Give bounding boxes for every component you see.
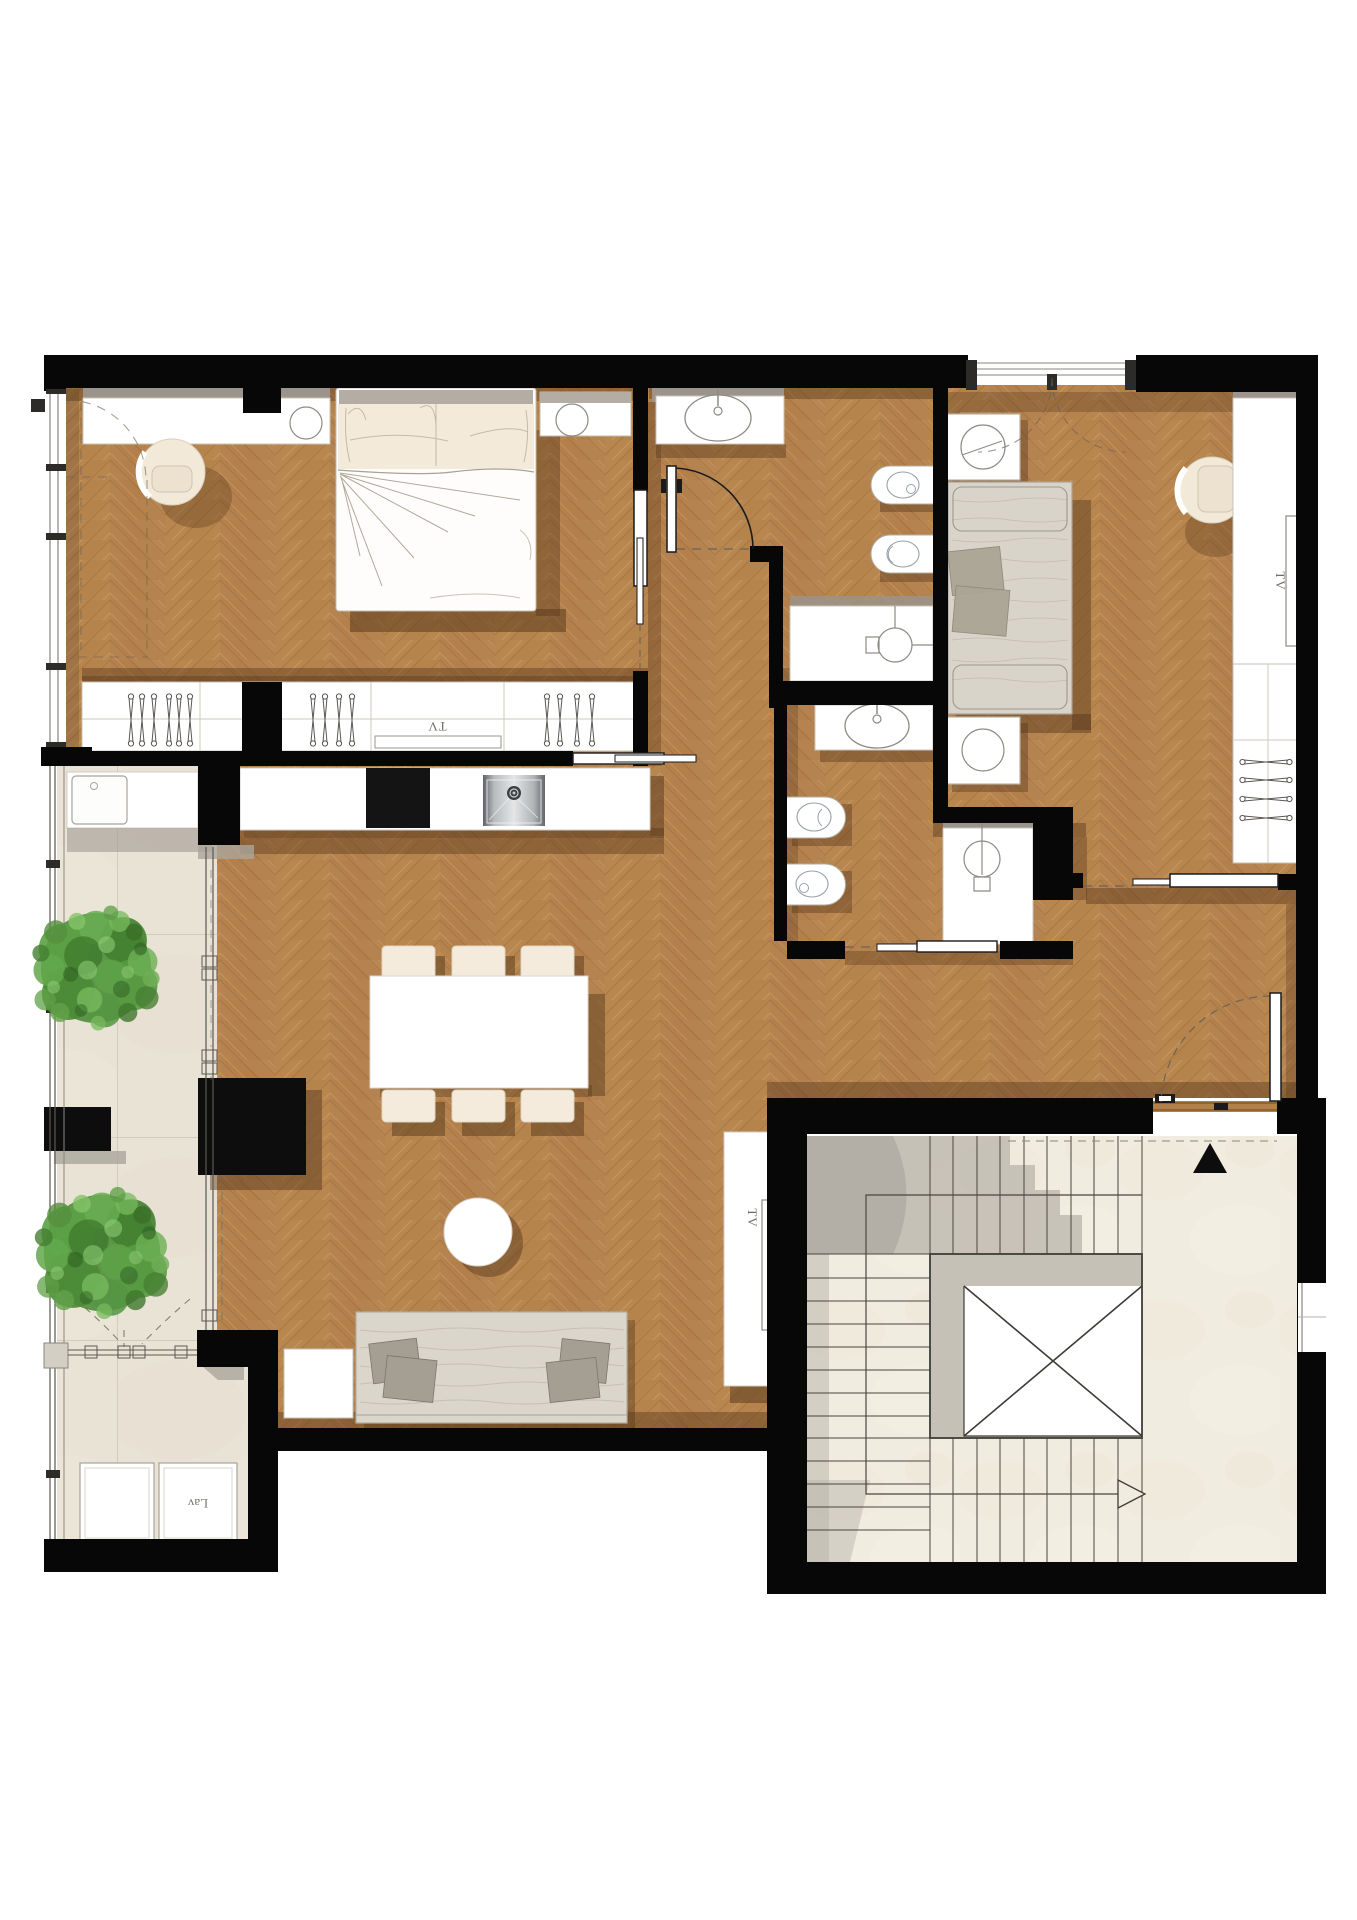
svg-text:TV: TV	[745, 1208, 760, 1227]
svg-text:Lav: Lav	[187, 1496, 208, 1511]
svg-text:TV: TV	[427, 719, 446, 734]
svg-text:TV: TV	[1273, 571, 1288, 590]
